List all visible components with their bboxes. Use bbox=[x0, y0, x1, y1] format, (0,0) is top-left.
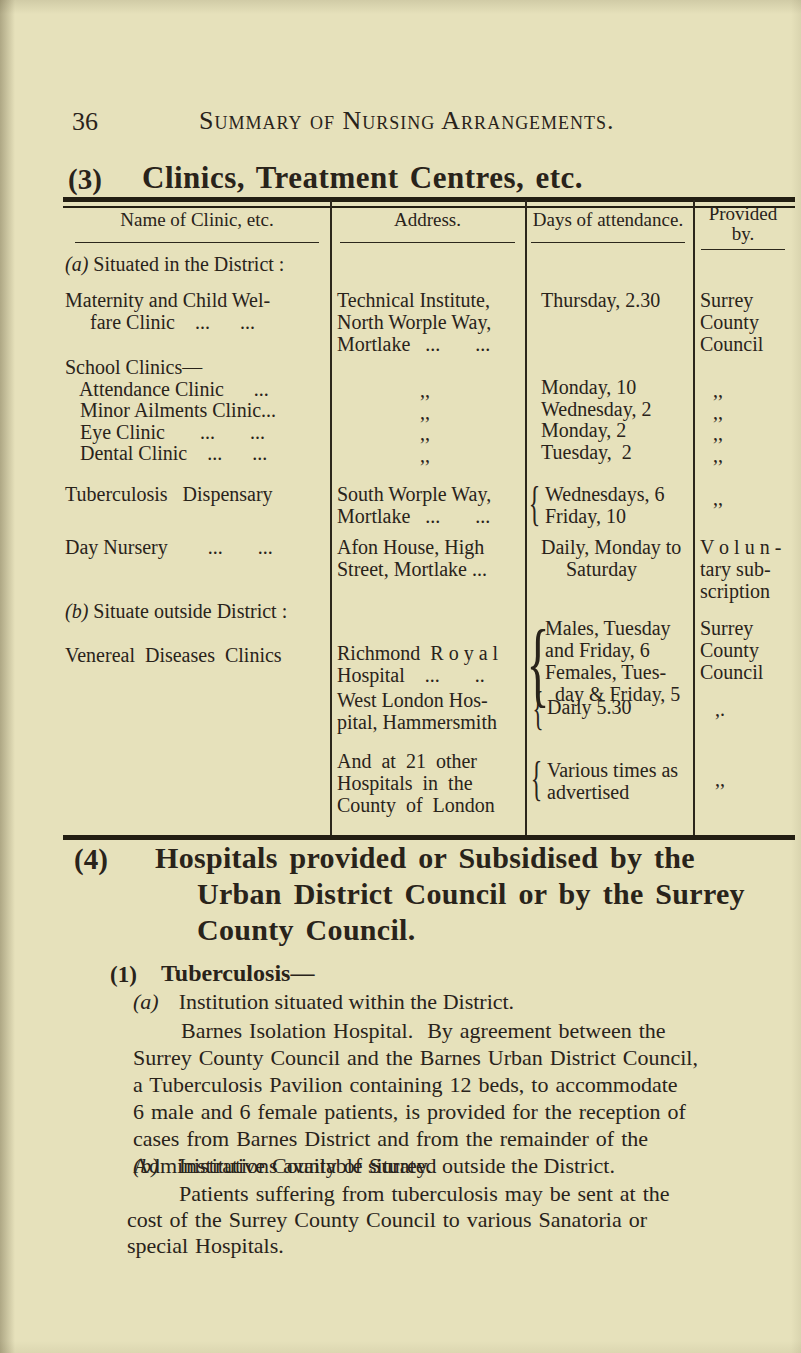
school-clinics-provided-ditto: ,, ,, ,, ,, bbox=[713, 380, 723, 466]
header-provided-by: Provided by. bbox=[701, 204, 785, 250]
page-number: 36 bbox=[72, 107, 98, 137]
day-nursery-name: Day Nursery ... ... bbox=[65, 536, 273, 558]
west-london-provided-ditto: ,. bbox=[715, 698, 725, 720]
tb-dispensary-days: Wednesdays, 6 Friday, 10 bbox=[545, 483, 664, 527]
group-a-letter: (a) bbox=[65, 253, 88, 275]
tb-dispensary-name: Tuberculosis Dispensary bbox=[65, 483, 273, 505]
west-london-hospital-days: Daily 5.30 bbox=[547, 696, 631, 718]
running-title: Summary of Nursing Arrangements. bbox=[199, 106, 615, 136]
maternity-clinic-provided: Surrey County Council bbox=[700, 289, 763, 355]
maternity-clinic-name: Maternity and Child Wel- fare Clinic ...… bbox=[65, 289, 270, 333]
vd-clinics-provided: Surrey County Council bbox=[700, 617, 763, 683]
other-hospitals-days: Various times as advertised bbox=[547, 759, 678, 803]
tb-item-b: (b)Institutions available situated outsi… bbox=[133, 1153, 615, 1179]
section4-title-line1: Hospitals provided or Subsidised by the bbox=[155, 840, 745, 876]
tb-section-number: (1) bbox=[110, 962, 137, 988]
brace-icon: { bbox=[531, 755, 543, 803]
column-divider-3 bbox=[693, 200, 695, 835]
tb-item-a-text: Institution situated within the District… bbox=[179, 989, 514, 1014]
vd-clinics-days: Males, Tuesday and Friday, 6 Females, Tu… bbox=[545, 617, 680, 705]
school-clinics-address-ditto: ,, ,, ,, ,, bbox=[420, 380, 430, 466]
section4-title-line3: County Council. bbox=[197, 912, 745, 948]
header-days-of-attendance: Days of attendance. bbox=[531, 210, 685, 243]
day-nursery-address: Afon House, High Street, Mortlake ... bbox=[337, 536, 487, 580]
maternity-clinic-address: Technical Institute, North Worple Way, M… bbox=[337, 289, 491, 355]
other-hospitals-address: And at 21 other Hospitals in the County … bbox=[337, 750, 495, 816]
tb-item-b-text: Institutions available situated outside … bbox=[179, 1153, 615, 1178]
west-london-hospital-address: West London Hos- pital, Hammersmith bbox=[337, 689, 497, 733]
tb-item-b-letter: (b) bbox=[133, 1153, 159, 1179]
group-a-text: Situated in the District : bbox=[93, 253, 284, 275]
tb-dispensary-address: South Worple Way, Mortlake ... ... bbox=[337, 483, 491, 527]
day-nursery-days: Daily, Monday to Saturday bbox=[541, 536, 681, 580]
group-b-label: (b) Situate outside District : bbox=[65, 600, 287, 622]
section4-title: Hospitals provided or Subsidised by the … bbox=[155, 840, 745, 948]
group-b-text: Situate outside District : bbox=[93, 600, 287, 622]
tb-paragraph-b: Patients suffering from tuberculosis may… bbox=[127, 1181, 799, 1259]
other-hospitals-provided-ditto: ,, bbox=[715, 768, 725, 790]
section4-title-line2: Urban District Council or by the Surrey bbox=[197, 876, 745, 912]
brace-icon: { bbox=[533, 686, 544, 732]
tb-dispensary-provided-ditto: ,, bbox=[713, 487, 723, 509]
clinics-table: Name of Clinic, etc. Address. Days of at… bbox=[63, 197, 795, 843]
tb-item-a-letter: (a) bbox=[133, 989, 159, 1015]
school-clinics-days: Monday, 10 Wednesday, 2 Monday, 2 Tuesda… bbox=[541, 377, 651, 463]
section3-title: Clinics, Treatment Centres, etc. bbox=[142, 160, 583, 196]
section3-number: (3) bbox=[68, 163, 102, 196]
maternity-clinic-days: Thursday, 2.30 bbox=[541, 289, 660, 311]
document-page: 36 Summary of Nursing Arrangements. (3) … bbox=[0, 0, 801, 1353]
tb-section-title: Tuberculosis— bbox=[161, 960, 314, 987]
group-a-label: (a) Situated in the District : bbox=[65, 253, 284, 275]
tb-item-a: (a)Institution situated within the Distr… bbox=[133, 989, 514, 1015]
column-divider-1 bbox=[330, 200, 332, 835]
day-nursery-provided: V o l u n - tary sub- scription bbox=[700, 536, 781, 602]
table-top-rule-thin bbox=[63, 206, 795, 208]
school-clinics-names: School Clinics— Attendance Clinic ... Mi… bbox=[65, 357, 276, 465]
header-name-of-clinic: Name of Clinic, etc. bbox=[75, 210, 319, 243]
column-divider-2 bbox=[525, 200, 527, 835]
brace-icon: { bbox=[529, 480, 541, 528]
table-top-rule-thick bbox=[63, 197, 795, 202]
vd-clinics-name: Venereal Diseases Clinics bbox=[65, 644, 282, 666]
vd-clinics-address: Richmond R o y a l Hospital ... .. bbox=[337, 642, 498, 686]
group-b-letter: (b) bbox=[65, 600, 88, 622]
header-address: Address. bbox=[340, 210, 515, 243]
section4-number: (4) bbox=[74, 843, 108, 876]
